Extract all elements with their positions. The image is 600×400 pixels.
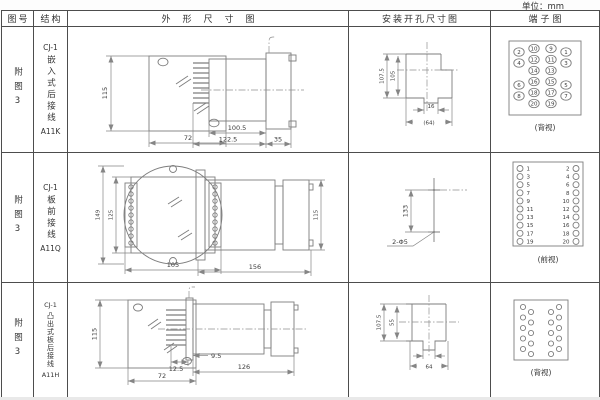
terminal-pins-front: 1 3 5 7 9 11 13 15 17 19 2 4 6 8 10 12 1 [517, 165, 579, 245]
structure-code-2: CJ-1 [43, 183, 58, 192]
terminal-cell-1: 2 4 6 8 10 12 14 16 18 20 9 11 13 15 17 … [491, 27, 599, 153]
header-structure: 结构 [34, 11, 68, 27]
dim-body-height-2: 115 [314, 209, 320, 220]
pin-num: 14 [563, 215, 570, 221]
dim-cutout-width-3: 64 [426, 365, 433, 371]
dim-front-height-inner-2: 125 [109, 209, 115, 220]
dim-cutout-width-1: (64) [423, 121, 434, 127]
pin-num: 11 [548, 58, 555, 64]
pin-num: 15 [527, 223, 534, 229]
outline-cell-1: 115 72 100.5 122.5 [68, 27, 349, 153]
pin-num: 18 [563, 231, 570, 237]
terminal-diagram-2: 1 3 5 7 9 11 13 15 17 19 2 4 6 8 10 12 1 [491, 154, 599, 282]
view-label-2: (前视) [538, 254, 559, 264]
pin-num: 3 [564, 61, 568, 67]
install-diagram-1: 107.5 105 16 (64) [349, 27, 490, 152]
pin-num: 13 [548, 69, 555, 75]
dim-height-outer-3: 107.5 [377, 314, 383, 330]
front-view-1: 115 72 [101, 56, 226, 147]
dim-notch-width-1: 16 [428, 104, 435, 110]
pin-num: 17 [548, 91, 555, 97]
fig-no-3: 附图3 [12, 318, 24, 363]
pin-num: 6 [566, 182, 570, 188]
outline-diagram-2: 149 125 105 156 [68, 154, 348, 282]
structure-3: CJ-1 凸出式板后接线 A11H [42, 301, 60, 379]
structure-1: CJ-1 嵌入式后接线 A11K [41, 43, 61, 136]
pin-num: 20 [531, 102, 538, 108]
structure-code-1: CJ-1 [43, 43, 58, 52]
dim-height-outer-1: 107.5 [380, 68, 386, 84]
structure-cell-3: CJ-1 凸出式板后接线 A11H [34, 283, 68, 397]
pin-num: 9 [527, 198, 531, 204]
structure-cell-1: CJ-1 嵌入式后接线 A11K [34, 27, 68, 153]
pin-num: 1 [527, 166, 531, 172]
fig-no-cell-2: 附图3 [2, 153, 34, 283]
header-fig-no-label: 图号 [5, 12, 29, 25]
pin-num: 7 [527, 190, 531, 196]
dim-height-inner-1: 105 [391, 70, 397, 81]
pin-num: 8 [566, 190, 570, 196]
structure-name-2: 板前接线 [44, 195, 56, 241]
dim-flange-depth-1: 35 [274, 136, 282, 144]
header-structure-label: 结构 [38, 12, 62, 25]
install-diagram-3: 107.5 55 64 [349, 284, 490, 396]
dim-total-length-3: 126 [238, 363, 250, 371]
pin-num: 2 [517, 50, 521, 56]
pin-num: 18 [531, 91, 538, 97]
pin-num: 19 [527, 239, 534, 245]
diagram-table: 图号 结构 外形尺寸图 安装开孔尺寸图 端子图 附图3 CJ-1 嵌入式后接线 … [1, 10, 600, 398]
terminal-pins-rear-3 [520, 304, 561, 356]
install-cell-3: 107.5 55 64 [349, 283, 491, 397]
pin-num: 10 [531, 47, 538, 53]
header-fig-no: 图号 [2, 11, 34, 27]
fig-no-1: 附图3 [12, 67, 24, 112]
dim-front-height-3: 115 [91, 328, 99, 340]
pin-num: 4 [566, 174, 570, 180]
header-terminal-label: 端子图 [525, 12, 564, 25]
terminal-cell-2: 1 3 5 7 9 11 13 15 17 19 2 4 6 8 10 12 1 [491, 153, 599, 283]
dim-hole-spacing-2: 133 [402, 204, 410, 216]
fig-no-2: 附图3 [12, 195, 24, 240]
front-view-2: 149 125 105 [96, 165, 223, 274]
pin-num: 3 [527, 174, 531, 180]
view-label-1: (背视) [535, 122, 556, 132]
page: 单位：mm 图号 结构 外形尺寸图 安装开孔尺寸图 端子图 附图3 CJ-1 嵌… [0, 0, 600, 400]
dim-holes-2: 2-Φ5 [392, 238, 408, 246]
structure-code-3: CJ-1 [44, 301, 57, 309]
dim-front-height-outer-2: 149 [96, 209, 102, 220]
dim-front-width-1: 72 [184, 134, 192, 142]
structure-model-1: A11K [41, 127, 61, 136]
fig-no-cell-3: 附图3 [2, 283, 34, 397]
terminal-diagram-3: (背视) [491, 284, 599, 396]
pin-num: 16 [531, 80, 538, 86]
install-diagram-2: 133 2-Φ5 [349, 154, 490, 282]
outline-cell-2: 149 125 105 156 [68, 153, 349, 283]
pin-num: 5 [527, 182, 531, 188]
dim-pin-length-3: 12.5 [169, 365, 183, 373]
fig-no-cell-1: 附图3 [2, 27, 34, 153]
dim-offset-3: 9.5 [211, 352, 221, 360]
pin-num: 8 [517, 94, 521, 100]
structure-model-2: A11Q [40, 244, 61, 253]
pin-num: 9 [549, 47, 553, 53]
structure-cell-2: CJ-1 板前接线 A11Q [34, 153, 68, 283]
pin-num: 6 [517, 83, 521, 89]
header-terminal: 端子图 [491, 11, 599, 27]
install-cell-2: 133 2-Φ5 [349, 153, 491, 283]
header-outline-label: 外形尺寸图 [149, 12, 266, 25]
pin-num: 20 [563, 239, 570, 245]
pin-num: 5 [564, 83, 568, 89]
pin-num: 16 [563, 223, 570, 229]
dim-front-height-1: 115 [101, 87, 109, 99]
pin-num: 7 [564, 94, 568, 100]
pin-num: 11 [527, 207, 534, 213]
structure-name-3: 凸出式板后接线 [45, 312, 55, 368]
pin-num: 19 [548, 102, 555, 108]
pin-num: 4 [517, 61, 521, 67]
terminal-diagram-1: 2 4 6 8 10 12 14 16 18 20 9 11 13 15 17 … [491, 27, 599, 152]
outline-diagram-1: 115 72 100.5 122.5 [68, 27, 348, 152]
structure-name-1: 嵌入式后接线 [45, 55, 57, 124]
outline-diagram-3: 115 72 12.5 [68, 284, 348, 396]
header-install: 安装开孔尺寸图 [349, 11, 491, 27]
dim-front-width-3: 72 [158, 372, 166, 380]
view-label-3: (背视) [531, 367, 552, 377]
terminal-cell-3: (背视) [491, 283, 599, 397]
pin-num: 13 [527, 215, 534, 221]
pin-num: 15 [548, 80, 555, 86]
pin-num: 12 [531, 58, 538, 64]
pin-num: 1 [564, 50, 568, 56]
dim-body-length-1: 100.5 [228, 124, 247, 132]
header-outline: 外形尺寸图 [68, 11, 349, 27]
structure-2: CJ-1 板前接线 A11Q [40, 183, 61, 253]
pin-num: 2 [566, 166, 570, 172]
pin-num: 14 [531, 69, 538, 75]
dim-height-inner-3: 55 [390, 319, 396, 326]
terminal-pins-rear: 2 4 6 8 10 12 14 16 18 20 9 11 13 15 17 … [514, 44, 571, 107]
dim-total-length-1: 122.5 [219, 136, 238, 144]
pin-num: 12 [563, 207, 570, 213]
install-cell-1: 107.5 105 16 (64) [349, 27, 491, 153]
pin-num: 10 [563, 198, 570, 204]
outline-cell-3: 115 72 12.5 [68, 283, 349, 397]
pin-num: 17 [527, 231, 534, 237]
structure-model-3: A11H [42, 371, 60, 379]
header-install-label: 安装开孔尺寸图 [380, 12, 459, 25]
dim-total-length-2: 156 [249, 263, 261, 271]
dim-front-width-2: 105 [167, 261, 179, 269]
